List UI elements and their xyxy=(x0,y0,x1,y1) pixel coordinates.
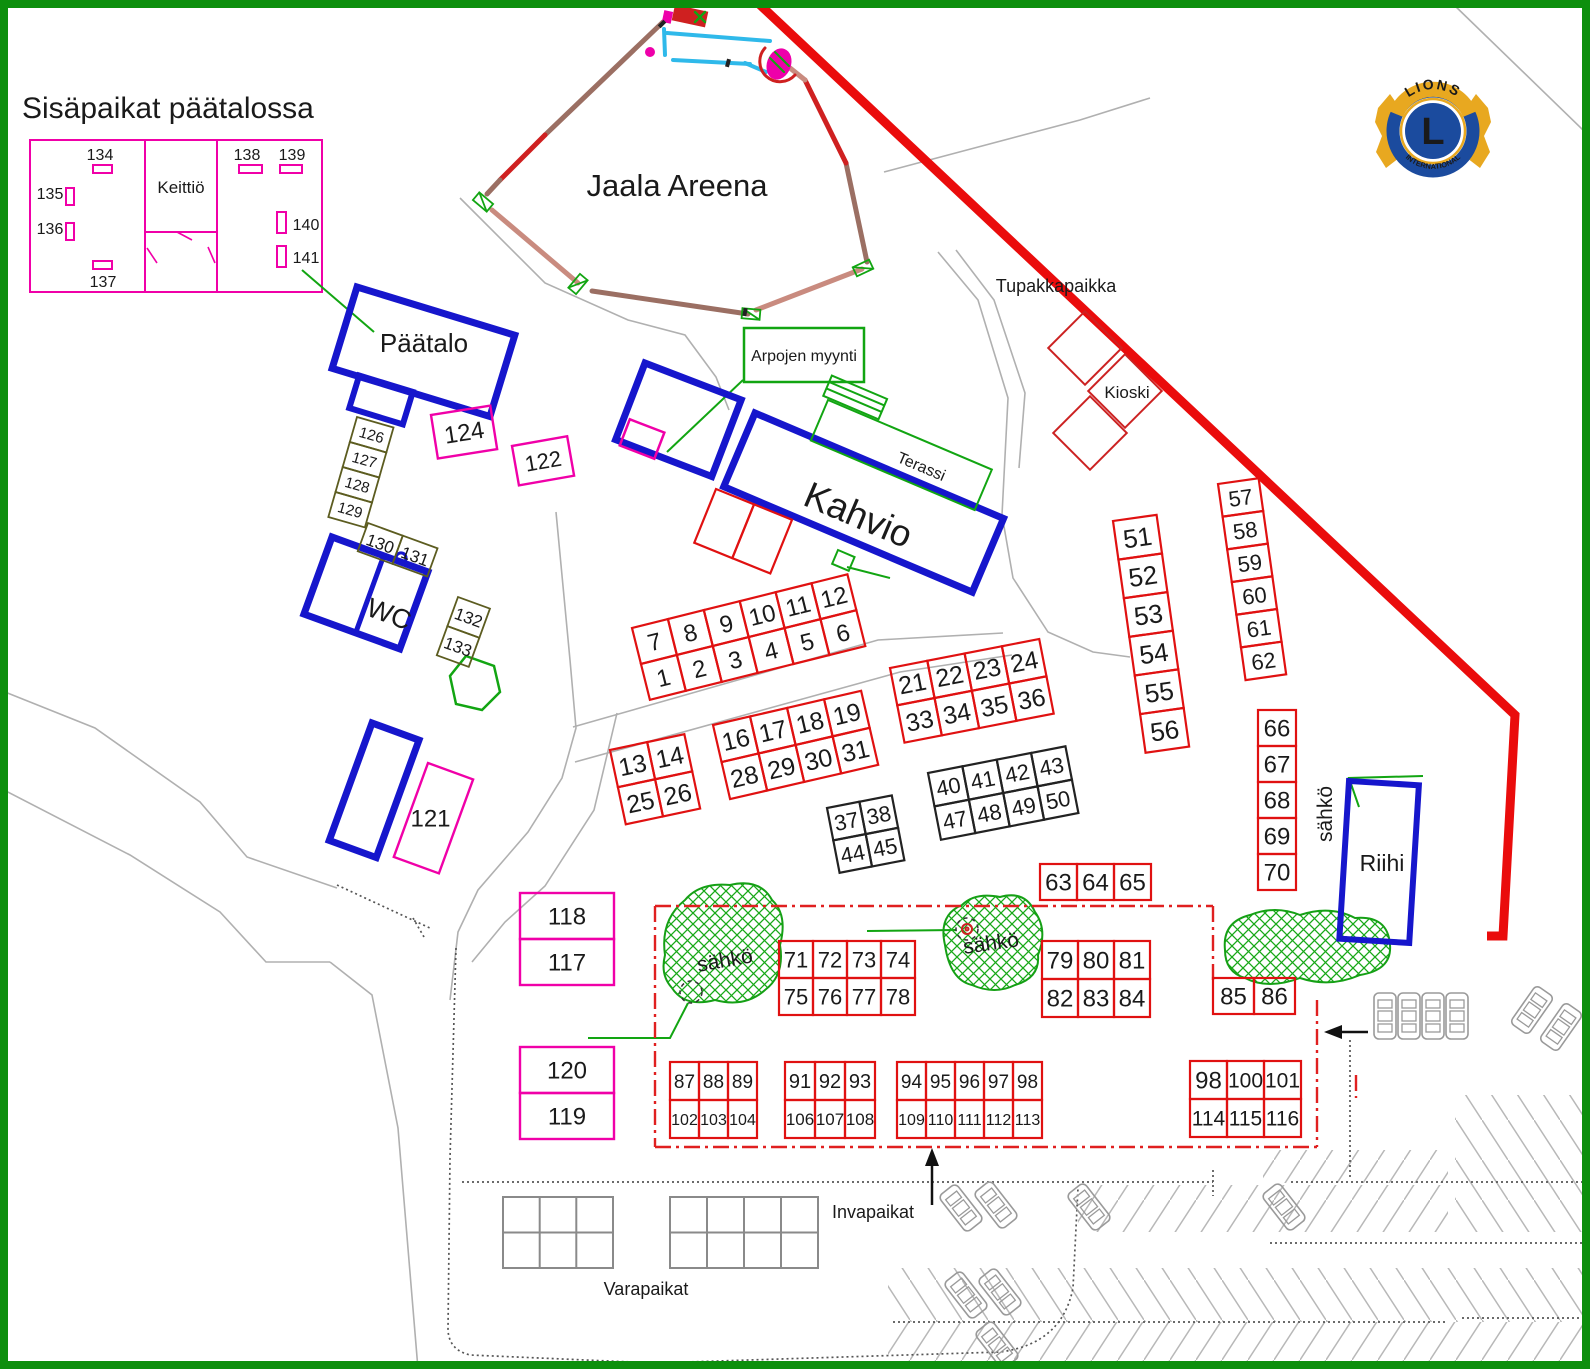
stall-label: 5 xyxy=(798,628,817,657)
site-map: Jaala Areena Sisäpaikat päätalossa 13413… xyxy=(0,0,1590,1369)
stall-label: 10 xyxy=(746,599,778,632)
stall-label: 9 xyxy=(717,610,736,639)
stall-label: 26 xyxy=(661,778,694,811)
stall-label: 13 xyxy=(616,749,649,782)
stall-label: 22 xyxy=(933,660,966,693)
stall-label: 34 xyxy=(941,698,974,731)
stall-label: 126 xyxy=(357,424,386,447)
stall-label: 119 xyxy=(548,1104,586,1131)
stall-label: 21 xyxy=(896,668,929,701)
stall-label: 68 xyxy=(1264,788,1291,815)
stall-label: 49 xyxy=(1009,792,1038,821)
well-hexagon xyxy=(450,656,500,710)
stall-label: 33 xyxy=(903,705,936,738)
stall-label: 124 xyxy=(442,417,486,450)
stall-label: 116 xyxy=(1266,1108,1299,1131)
stall-label: 28 xyxy=(728,760,761,794)
stall-group-51-56: 515253545556 xyxy=(1113,515,1189,753)
stall-label: 74 xyxy=(886,947,910,972)
stall-label: 19 xyxy=(830,698,863,732)
stall-label: 117 xyxy=(548,950,586,977)
stall-label: 89 xyxy=(732,1072,753,1093)
stall-label: 87 xyxy=(674,1072,695,1093)
stall-group-40-50: 4041424347484950 xyxy=(928,746,1078,839)
varapaikat-grids xyxy=(503,1197,818,1268)
stall-label: 83 xyxy=(1083,986,1110,1013)
dotted-path xyxy=(337,885,432,929)
parking-band xyxy=(1078,1185,1448,1232)
stall-label: 110 xyxy=(928,1112,954,1129)
stall-label: 37 xyxy=(832,807,861,836)
stall-label: 53 xyxy=(1132,598,1165,632)
pointer-line xyxy=(847,567,890,578)
stall-label: 41 xyxy=(968,765,997,794)
stall-label: 48 xyxy=(975,799,1004,828)
stall-label: 84 xyxy=(1119,986,1146,1013)
stall-label: 91 xyxy=(789,1071,811,1093)
floorplan-units: 134135136137138139140141 xyxy=(37,147,320,291)
pointer-line xyxy=(302,270,374,332)
floorplan-stall-marker xyxy=(93,165,112,173)
tupakkapaikka-label: Tupakkapaikka xyxy=(996,276,1117,296)
stall-group-57-62: 575859606162 xyxy=(1218,478,1286,680)
stall-label: 85 xyxy=(1220,984,1247,1011)
stall-label: 44 xyxy=(838,839,867,868)
stall-label: 127 xyxy=(350,449,379,472)
stall-label: 108 xyxy=(846,1110,874,1129)
stall-group-1-12: 789101112123456 xyxy=(632,574,865,700)
road xyxy=(938,252,1130,657)
stall-label: 93 xyxy=(849,1071,871,1093)
stall-label: 16 xyxy=(719,723,752,757)
stall-label: 63 xyxy=(1045,870,1072,897)
road xyxy=(0,690,337,888)
stall-group-91-108: 919293106107108 xyxy=(785,1062,875,1138)
stall-label: 79 xyxy=(1047,948,1074,975)
stall-label: 56 xyxy=(1148,714,1181,748)
stall-label: 8 xyxy=(681,619,700,648)
stall-label: 45 xyxy=(871,833,900,862)
stall-group-122: 122 xyxy=(512,436,574,485)
lions-letter: L xyxy=(1421,111,1444,153)
stall-label: 114 xyxy=(1192,1108,1226,1131)
stall-label: 122 xyxy=(523,446,564,477)
lottery-building xyxy=(614,363,741,480)
stall-label: 115 xyxy=(1229,1108,1262,1131)
stall-label: 118 xyxy=(548,904,586,931)
stall-label: 38 xyxy=(864,801,893,830)
arena-label: Jaala Areena xyxy=(587,168,769,203)
invapaikat-label: Invapaikat xyxy=(832,1202,914,1222)
stall-group-66-70: 6667686970 xyxy=(1258,710,1296,890)
stall-label: 92 xyxy=(819,1071,841,1093)
stall-label: 50 xyxy=(1044,785,1073,814)
riihi-label: Riihi xyxy=(1360,850,1405,876)
stall-label: 132 xyxy=(452,604,485,632)
kioski-label: Kioski xyxy=(1104,383,1149,402)
varapaikat-grid xyxy=(670,1197,818,1268)
stall-label: 78 xyxy=(886,984,910,1009)
stall-label: 36 xyxy=(1015,683,1048,716)
stall-label: 112 xyxy=(986,1112,1012,1129)
stall-label: 97 xyxy=(988,1072,1009,1093)
stall-label: 111 xyxy=(957,1112,981,1129)
stall-group-kahvio-stand xyxy=(694,489,792,573)
direction-arrow-left xyxy=(1324,1025,1368,1039)
stall-group-37-45: 37384445 xyxy=(827,795,904,872)
parking-band xyxy=(888,1268,1582,1322)
stall-label: 12 xyxy=(818,581,850,614)
stall-label: 81 xyxy=(1119,948,1146,975)
kitchen-label: Keittiö xyxy=(157,178,204,197)
kahvio-building: Kahvio xyxy=(724,413,1004,592)
stall-group-79-84: 798081828384 xyxy=(1042,941,1150,1017)
stall-group-71-78: 7172737475767778 xyxy=(779,941,915,1015)
stall-label: 31 xyxy=(839,735,872,769)
stall-label: 103 xyxy=(700,1112,727,1129)
floorplan-stall-label: 135 xyxy=(37,186,64,203)
stall-label: 67 xyxy=(1264,752,1291,779)
paatalo-label: Päätalo xyxy=(380,328,468,358)
stall-label: 18 xyxy=(793,706,826,740)
stall-group-63-65: 636465 xyxy=(1040,864,1151,900)
stall-label: 35 xyxy=(978,690,1011,723)
stall-group-117-118: 118117 xyxy=(520,893,614,985)
stall-group-130-131: 130131 xyxy=(358,523,438,577)
car-icon xyxy=(1374,993,1396,1039)
arpojen-label: Arpojen myynti xyxy=(751,348,857,365)
stall-group-132-133: 132133 xyxy=(437,597,490,667)
stall-label: 24 xyxy=(1008,646,1041,679)
stall-label: 76 xyxy=(818,984,842,1009)
stall-label: 43 xyxy=(1037,752,1066,781)
direction-arrow-up xyxy=(925,1148,939,1205)
parking-band xyxy=(1455,1095,1583,1232)
stall-group-126-129: 126127128129 xyxy=(328,417,393,527)
stall-label: 42 xyxy=(1003,759,1032,788)
stall-label: 1 xyxy=(654,664,673,693)
stall-label: 4 xyxy=(762,637,781,666)
floorplan-stall-marker xyxy=(277,212,286,233)
stall-label: 102 xyxy=(671,1112,698,1129)
stall-label: 75 xyxy=(784,984,808,1009)
stall-group-21-36: 2122232433343536 xyxy=(890,639,1054,743)
parking-bays xyxy=(888,1095,1583,1364)
stall-label: 129 xyxy=(336,499,365,522)
stall-label: 66 xyxy=(1264,716,1291,743)
stall-label: 69 xyxy=(1264,824,1291,851)
floorplan-stall-marker xyxy=(280,165,302,173)
arena-stage xyxy=(645,5,796,317)
stall-label: 23 xyxy=(971,653,1004,686)
stall-label: 104 xyxy=(729,1112,756,1129)
floorplan-stall-marker xyxy=(93,261,112,269)
stall-label: 2 xyxy=(690,655,709,684)
stall-label: 47 xyxy=(941,806,970,835)
stall-label: 71 xyxy=(784,947,808,972)
stall-label: 86 xyxy=(1261,984,1288,1011)
stall-group-94-113: 9495969798109110111112113 xyxy=(897,1062,1042,1138)
stall-label: 128 xyxy=(343,474,372,497)
stall-label: 30 xyxy=(802,743,835,777)
floorplan-stall-label: 137 xyxy=(90,274,117,291)
stall-group-16-31: 1617181928293031 xyxy=(713,691,878,799)
stall-label: 17 xyxy=(756,715,789,749)
stall-label: 95 xyxy=(930,1072,951,1093)
paatalo-building xyxy=(323,287,515,448)
stall-group-119-120: 120119 xyxy=(520,1047,614,1139)
stall-label: 14 xyxy=(653,741,686,774)
car-icon xyxy=(1422,993,1444,1039)
stall-group-85-86: 8586 xyxy=(1213,978,1295,1014)
stall-group-13-26: 13142526 xyxy=(610,734,700,824)
stall-label: 101 xyxy=(1265,1070,1300,1093)
pointer-line xyxy=(588,1003,688,1038)
stall-label: 59 xyxy=(1236,549,1264,577)
stall-label: 7 xyxy=(645,628,664,657)
floorplan-stall-label: 141 xyxy=(293,250,320,267)
road xyxy=(330,962,418,1369)
stall-label: 80 xyxy=(1083,948,1110,975)
stall-label: 77 xyxy=(852,984,876,1009)
lions-logo: L LIONS INTERNATIONAL xyxy=(1375,76,1491,171)
floorplan-stall-label: 136 xyxy=(37,221,64,238)
stall-label: 60 xyxy=(1241,582,1269,610)
wc-label: WC xyxy=(363,592,416,636)
stall-label: 98 xyxy=(1017,1072,1038,1093)
stall-label: 70 xyxy=(1264,860,1291,887)
stall-label: 88 xyxy=(703,1072,724,1093)
stall-label: 64 xyxy=(1082,870,1109,897)
stall-label: 82 xyxy=(1047,986,1074,1013)
stall-label: 51 xyxy=(1121,521,1154,555)
stall-label: 6 xyxy=(833,619,852,648)
stall-group-98-116: 98100101114115116 xyxy=(1190,1061,1301,1137)
stall-label: 65 xyxy=(1119,870,1146,897)
stall-label: 62 xyxy=(1250,647,1278,675)
floorplan-stall-label: 134 xyxy=(87,147,114,164)
hatch-area xyxy=(664,883,783,1002)
floorplan-stall-marker xyxy=(239,165,262,173)
stall-label: 55 xyxy=(1143,675,1176,709)
stall-label: 25 xyxy=(624,786,657,819)
parking-band xyxy=(1263,1150,1448,1183)
stall-label: 120 xyxy=(547,1058,587,1085)
storage-building xyxy=(329,723,419,858)
road xyxy=(472,713,617,962)
varapaikat-grid xyxy=(503,1197,613,1268)
stall-label: 52 xyxy=(1127,559,1160,593)
varapaikat-label: Varapaikat xyxy=(604,1279,689,1299)
floorplan-stall-label: 139 xyxy=(279,147,306,164)
stall-label: 11 xyxy=(783,591,814,623)
stall-label: 57 xyxy=(1227,484,1255,512)
hatch-area xyxy=(1225,910,1390,984)
road xyxy=(0,788,330,962)
floorplan-stall-label: 138 xyxy=(234,147,261,164)
stall-label: 113 xyxy=(1015,1112,1041,1129)
car-icon xyxy=(1446,993,1468,1039)
stall-label: 96 xyxy=(959,1072,980,1093)
floorplan-stall-marker xyxy=(277,246,286,267)
sahko-label: sähkö xyxy=(1314,786,1337,842)
stall-label: 121 xyxy=(410,805,450,832)
car-icon xyxy=(1398,993,1420,1039)
stall-label: 100 xyxy=(1228,1070,1263,1093)
page-title: Sisäpaikat päätalossa xyxy=(22,92,314,125)
stall-label: 94 xyxy=(901,1072,923,1093)
stall-label: 54 xyxy=(1137,637,1170,671)
stall-label: 107 xyxy=(816,1110,844,1129)
stall-label: 109 xyxy=(898,1112,925,1129)
stall-label: 61 xyxy=(1245,615,1273,643)
stall-label: 58 xyxy=(1231,516,1259,544)
stall-label: 3 xyxy=(726,646,745,675)
stall-label: 98 xyxy=(1195,1068,1222,1095)
stall-label: 73 xyxy=(852,947,876,972)
floorplan-stall-marker xyxy=(66,223,74,240)
stall-label: 29 xyxy=(765,752,798,786)
stall-label: 72 xyxy=(818,947,842,972)
floorplan-stall-marker xyxy=(66,188,74,205)
stall-label: 106 xyxy=(786,1110,814,1129)
floorplan-stall-label: 140 xyxy=(293,217,320,234)
stall-label: 40 xyxy=(934,772,963,801)
stall-group-87-104: 878889102103104 xyxy=(670,1062,757,1138)
